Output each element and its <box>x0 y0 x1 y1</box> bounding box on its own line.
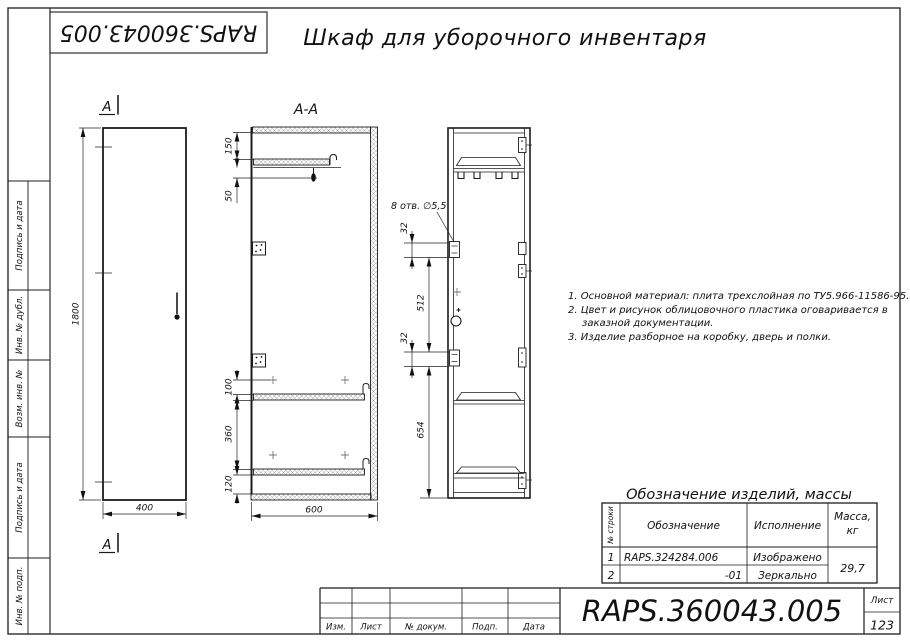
col-date: Дата <box>522 623 545 633</box>
col-izm: Изм. <box>326 623 346 633</box>
sheet-label: Лист <box>870 596 895 606</box>
dim-label-400: 400 <box>136 504 153 514</box>
note-line: заказной документации. <box>582 318 713 329</box>
note-line: 3. Изделие разборное на коробку, дверь и… <box>568 331 831 343</box>
hinge-plate <box>253 354 266 367</box>
row-execution: Зеркально <box>758 570 817 582</box>
top-designation-stamp: RAPS.360043.005 <box>50 12 267 53</box>
drawing-title: Шкаф для уборочного инвентаря <box>303 26 707 51</box>
top-shelf <box>457 158 521 166</box>
row-num: 2 <box>608 570 615 582</box>
note-line: 2. Цвет и рисунок облицовочного пластика… <box>568 304 888 316</box>
dim-label-512: 512 <box>417 294 427 311</box>
note-line: 1. Основной материал: плита трехслойная … <box>568 291 909 302</box>
table-row: 1 RAPS.324284.006 Изображено <box>608 552 822 564</box>
section-view: А-А <box>225 102 378 521</box>
col-mass: кг <box>847 525 859 537</box>
table-row: 2 -01 Зеркально <box>608 570 817 582</box>
dim-label-150: 150 <box>225 137 235 154</box>
shelf-bracket <box>363 384 369 394</box>
section-mark-top: А <box>99 95 118 115</box>
holes-callout: 8 отв. ∅5,5 <box>391 201 446 212</box>
section-label: А <box>102 538 112 553</box>
bottom-panel <box>251 494 371 500</box>
side-dims: 32 512 32 654 8 отв. ∅5,5 <box>391 201 454 498</box>
parts-table: Обозначение изделий, массы № строки Обоз… <box>602 487 877 583</box>
dim-label-32-top: 32 <box>400 222 410 234</box>
col-sign: Подп. <box>472 623 498 633</box>
section-view-label: А-А <box>293 102 318 118</box>
col-row-no: № строки <box>606 506 615 545</box>
row-designation: RAPS.324284.006 <box>624 552 719 564</box>
stamp-designation: RAPS.360043.005 <box>60 20 258 45</box>
shelf-3 <box>254 469 365 475</box>
top-panel <box>253 127 371 133</box>
mass-value: 29,7 <box>840 562 865 575</box>
section-dims: 150 50 100 360 120 600 <box>225 133 378 522</box>
sheet-number: 123 <box>870 618 894 633</box>
side-view: 32 512 32 654 8 отв. ∅5,5 <box>391 128 532 498</box>
col-mass: Масса, <box>834 511 871 523</box>
dim-front-height: 1800 <box>72 128 102 500</box>
title-block-designation: RAPS.360043.005 <box>582 594 842 628</box>
drawing-sheet: Подпись и дата Инв. № дубл. Возм. инв. №… <box>0 0 910 644</box>
sidebar-cell-label: Возм. инв. № <box>15 369 25 427</box>
dim-label-1800: 1800 <box>72 302 82 325</box>
notes-block: 1. Основной материал: плита трехслойная … <box>568 291 909 343</box>
section-label: А <box>102 100 112 115</box>
col-designation: Обозначение <box>647 520 720 532</box>
col-doc: № докум. <box>404 623 447 633</box>
dim-label-100: 100 <box>225 378 235 395</box>
shelf-bracket <box>363 459 369 469</box>
row-num: 1 <box>608 552 615 564</box>
back-panel <box>371 127 378 500</box>
sidebar-cell-label: Подпись и дата <box>15 462 25 532</box>
coat-hook <box>311 168 316 182</box>
dim-label-360: 360 <box>225 425 235 442</box>
row-designation: -01 <box>725 570 742 582</box>
shelf-2 <box>254 394 365 400</box>
row-execution: Изображено <box>753 552 822 564</box>
sidebar-cell-label: Инв. № дубл. <box>15 296 25 354</box>
dim-label-120: 120 <box>225 475 235 492</box>
col-list: Лист <box>359 623 383 633</box>
parts-table-title: Обозначение изделий, массы <box>626 487 852 503</box>
screw-marks <box>269 376 349 459</box>
hinge-plate <box>253 242 266 255</box>
dim-label-600: 600 <box>305 506 322 516</box>
title-block: Изм. Лист № докум. Подп. Дата RAPS.36004… <box>320 588 900 634</box>
shelf-bracket <box>330 155 337 166</box>
shelf-1 <box>254 159 330 165</box>
dim-front-width: 400 <box>103 502 186 519</box>
sidebar-cell-label: Инв. № подп. <box>15 567 25 626</box>
col-execution: Исполнение <box>754 520 821 532</box>
dim-label-32-bottom: 32 <box>400 332 410 344</box>
dim-label-654: 654 <box>417 421 427 438</box>
low-shelf <box>457 467 521 473</box>
sidebar-cell-label: Подпись и дата <box>15 200 25 270</box>
dim-label-50: 50 <box>225 190 235 202</box>
section-mark-bottom: А <box>99 533 118 553</box>
drawing-canvas: Подпись и дата Инв. № дубл. Возм. инв. №… <box>0 0 910 644</box>
front-view: А А 1800 400 <box>72 95 187 553</box>
mid-shelf <box>457 393 521 401</box>
sidebar-columns: Подпись и дата Инв. № дубл. Возм. инв. №… <box>8 181 50 634</box>
